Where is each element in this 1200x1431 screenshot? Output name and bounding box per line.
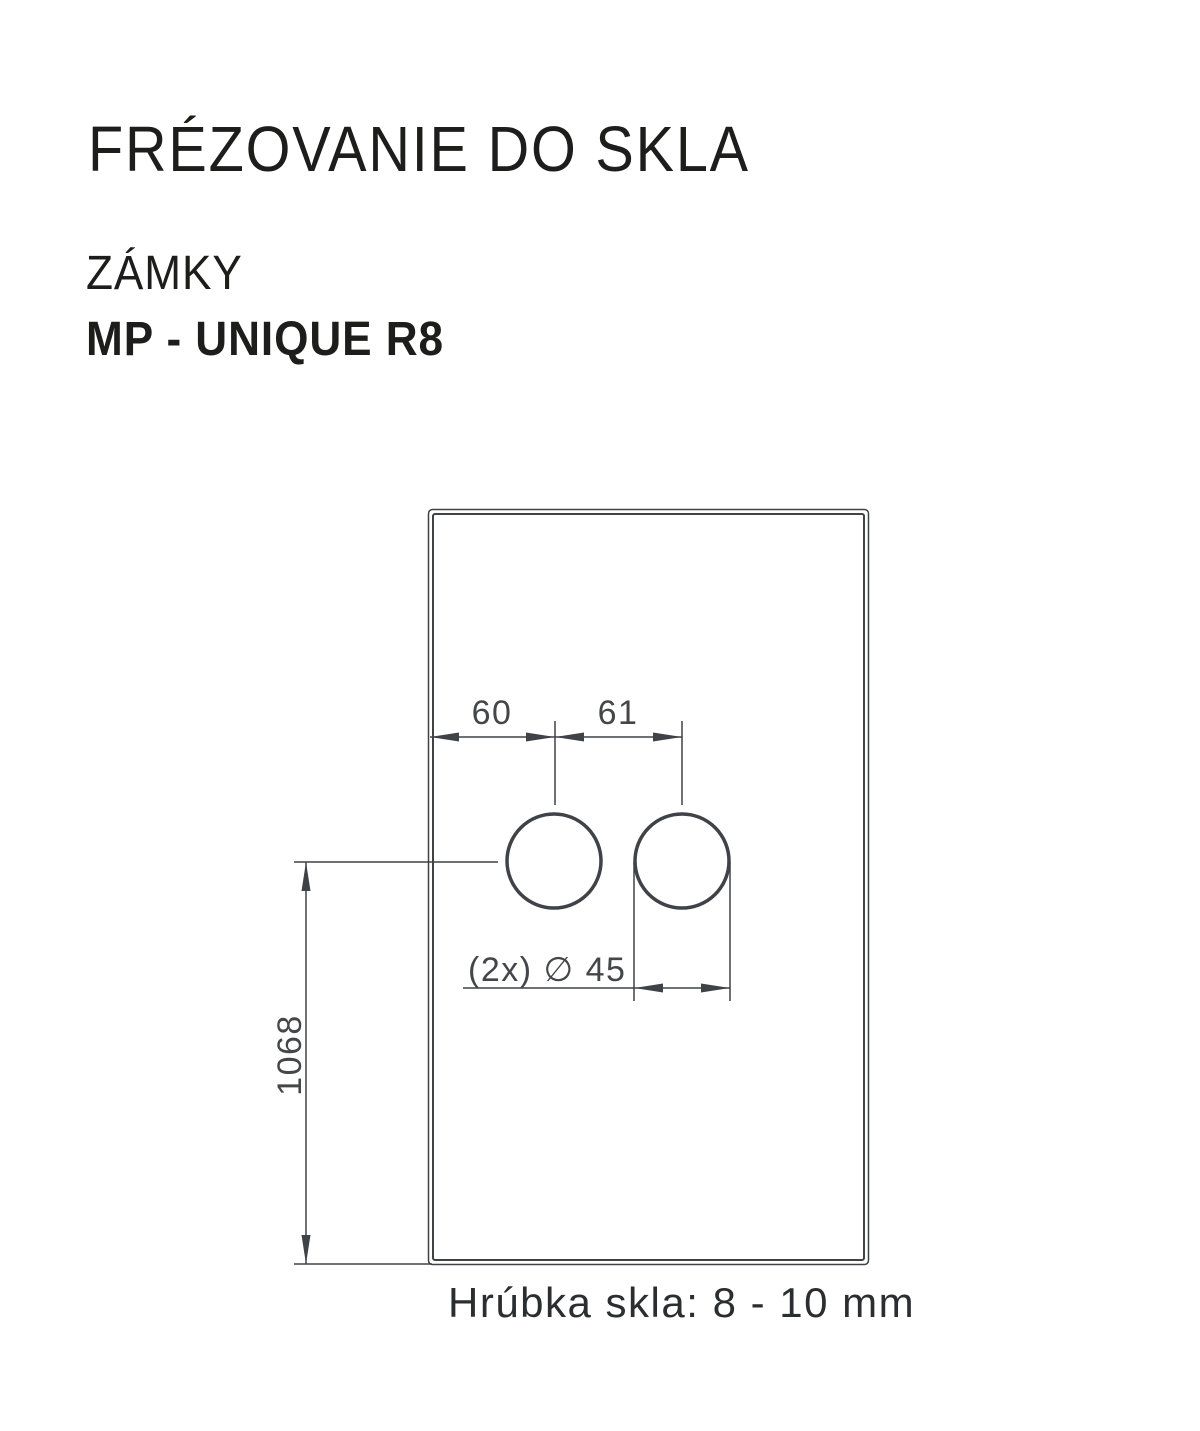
hole-right	[635, 814, 729, 908]
arrow-dim60-left	[430, 733, 459, 742]
arrow-dim60-right	[526, 733, 555, 742]
dim-60-label: 60	[472, 694, 513, 732]
arrow-dim61-left	[555, 733, 584, 742]
glass-panel-inner-edge	[433, 514, 864, 1260]
hole-left	[507, 814, 601, 908]
arrow-dim61-right	[653, 733, 682, 742]
arrow-dia-left	[634, 984, 663, 993]
technical-drawing: 60 61 1068 (2x) ∅ 45	[0, 0, 1200, 1431]
arrow-dia-right	[701, 984, 730, 993]
holes-diameter-label: (2x) ∅ 45	[468, 951, 626, 989]
arrow-dim1068-up	[302, 862, 311, 891]
dim-61-label: 61	[598, 694, 639, 732]
glass-thickness-note: Hrúbka skla: 8 - 10 mm	[448, 1282, 868, 1324]
glass-panel-outer-edge	[429, 510, 869, 1265]
dim-1068-label: 1068	[271, 1014, 309, 1096]
arrow-dim1068-down	[302, 1235, 311, 1264]
